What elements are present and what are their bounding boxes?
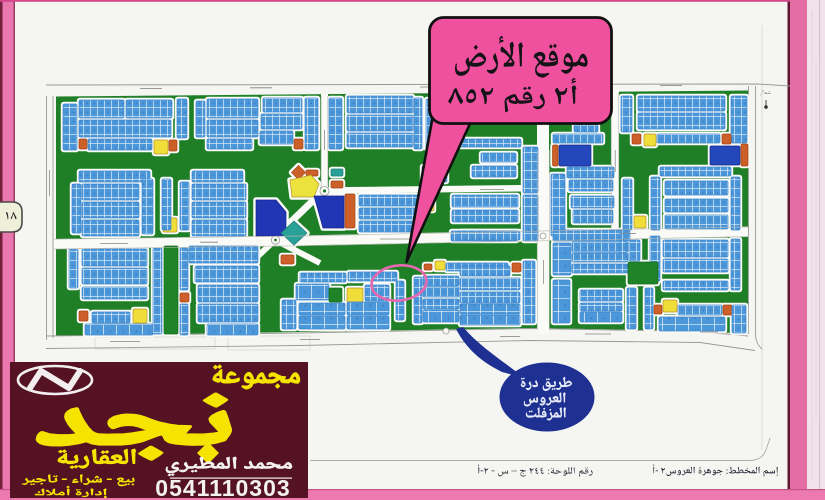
svg-text:0541110303: 0541110303 — [155, 475, 290, 500]
